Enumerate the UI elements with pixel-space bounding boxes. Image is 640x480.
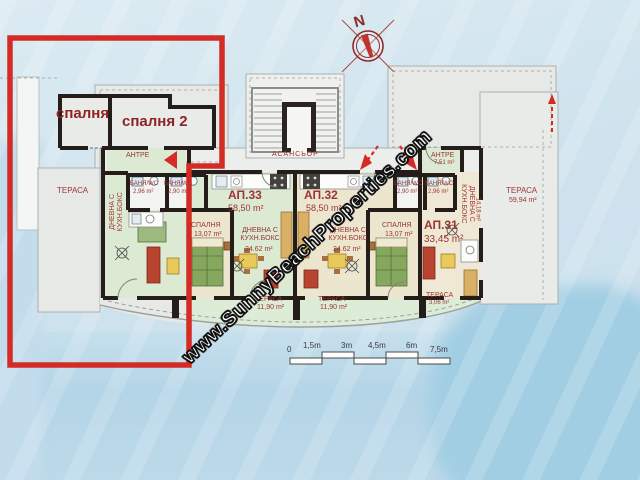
bath-1-area: 2,96 m² [133,189,153,196]
apt33-bedroom-label: СПАЛНЯ [191,222,221,230]
terrace-bottom2-area: 11,90 m² [320,304,347,312]
terrace-bottom2-label: ТЕРАСА [318,296,345,304]
terrace-bottom3-area: 3,06 m² [429,300,449,307]
apt33-label: АП.33 [228,189,262,202]
bath-4-area: 2,96 m² [428,189,448,196]
scale-tick-4: 6m [406,342,417,351]
elevator-label: АСАНСЬОР [272,151,319,159]
bath-4-label: БАНЯ/WC [425,181,453,188]
apt33-living-label: ДНЕВНА С КУХН.БОКС [234,227,286,243]
compass-icon [342,20,394,72]
living-left-label: ДНЕВНА С КУХН.БОКС [109,182,125,242]
bath-2-label: БАНЯ/WC [164,181,192,188]
scale-tick-1: 1,5m [303,342,321,351]
scale-tick-0: 0 [287,346,291,355]
apt33-bedroom-area: 13,07 m² [194,231,222,239]
apt32-label: АП.32 [304,189,338,202]
floor-plan-image: спалняспалня 2АНТРЕТЕРАСАДНЕВНА С КУХН.Б… [0,0,640,480]
bath-2-area: 2,90 m² [168,189,188,196]
apt32-living-area: 24.62 m² [333,246,361,254]
bedroom-1-label: спалня [56,106,109,123]
scale-tick-2: 3m [341,342,352,351]
scale-tick-3: 4,5m [368,342,386,351]
terrace-right-area: 59,94 m² [509,197,537,205]
terrace-left-label: ТЕРАСА [57,187,88,196]
terrace-right-label: ТЕРАСА [506,187,537,196]
bath-3-label: БАНЯ/WC [394,181,422,188]
hall-left-label: АНТРЕ [126,152,149,160]
apt31-living-area: 14,18 m² [474,189,481,229]
hall-right-label: АНТРЕ [431,152,454,160]
bath-3-area: 2,90 m² [397,189,417,196]
apt33-living-area: 24.62 m² [245,246,273,254]
apt32-bedroom-area: 13,07 m² [385,231,413,239]
stairs [252,88,338,153]
bath-1-label: БАНЯ/WC [130,181,158,188]
apt31-area: 33,45 m² [424,234,463,245]
scale-tick-5: 7,5m [430,346,448,355]
apt32-bedroom-label: СПАЛНЯ [382,222,412,230]
scale-bar [290,352,450,364]
apt31-label: АП.31 [424,219,458,232]
hall-right-area: 7,51 m² [434,160,454,167]
terrace-bottom3-label: ТЕРАСА [426,292,453,300]
bedroom-2-label: спалня 2 [122,114,188,131]
apt31-living-label: ДНЕВНА С КУХН.БОКС [459,174,475,234]
apt33-area: 58,50 m² [228,203,264,213]
